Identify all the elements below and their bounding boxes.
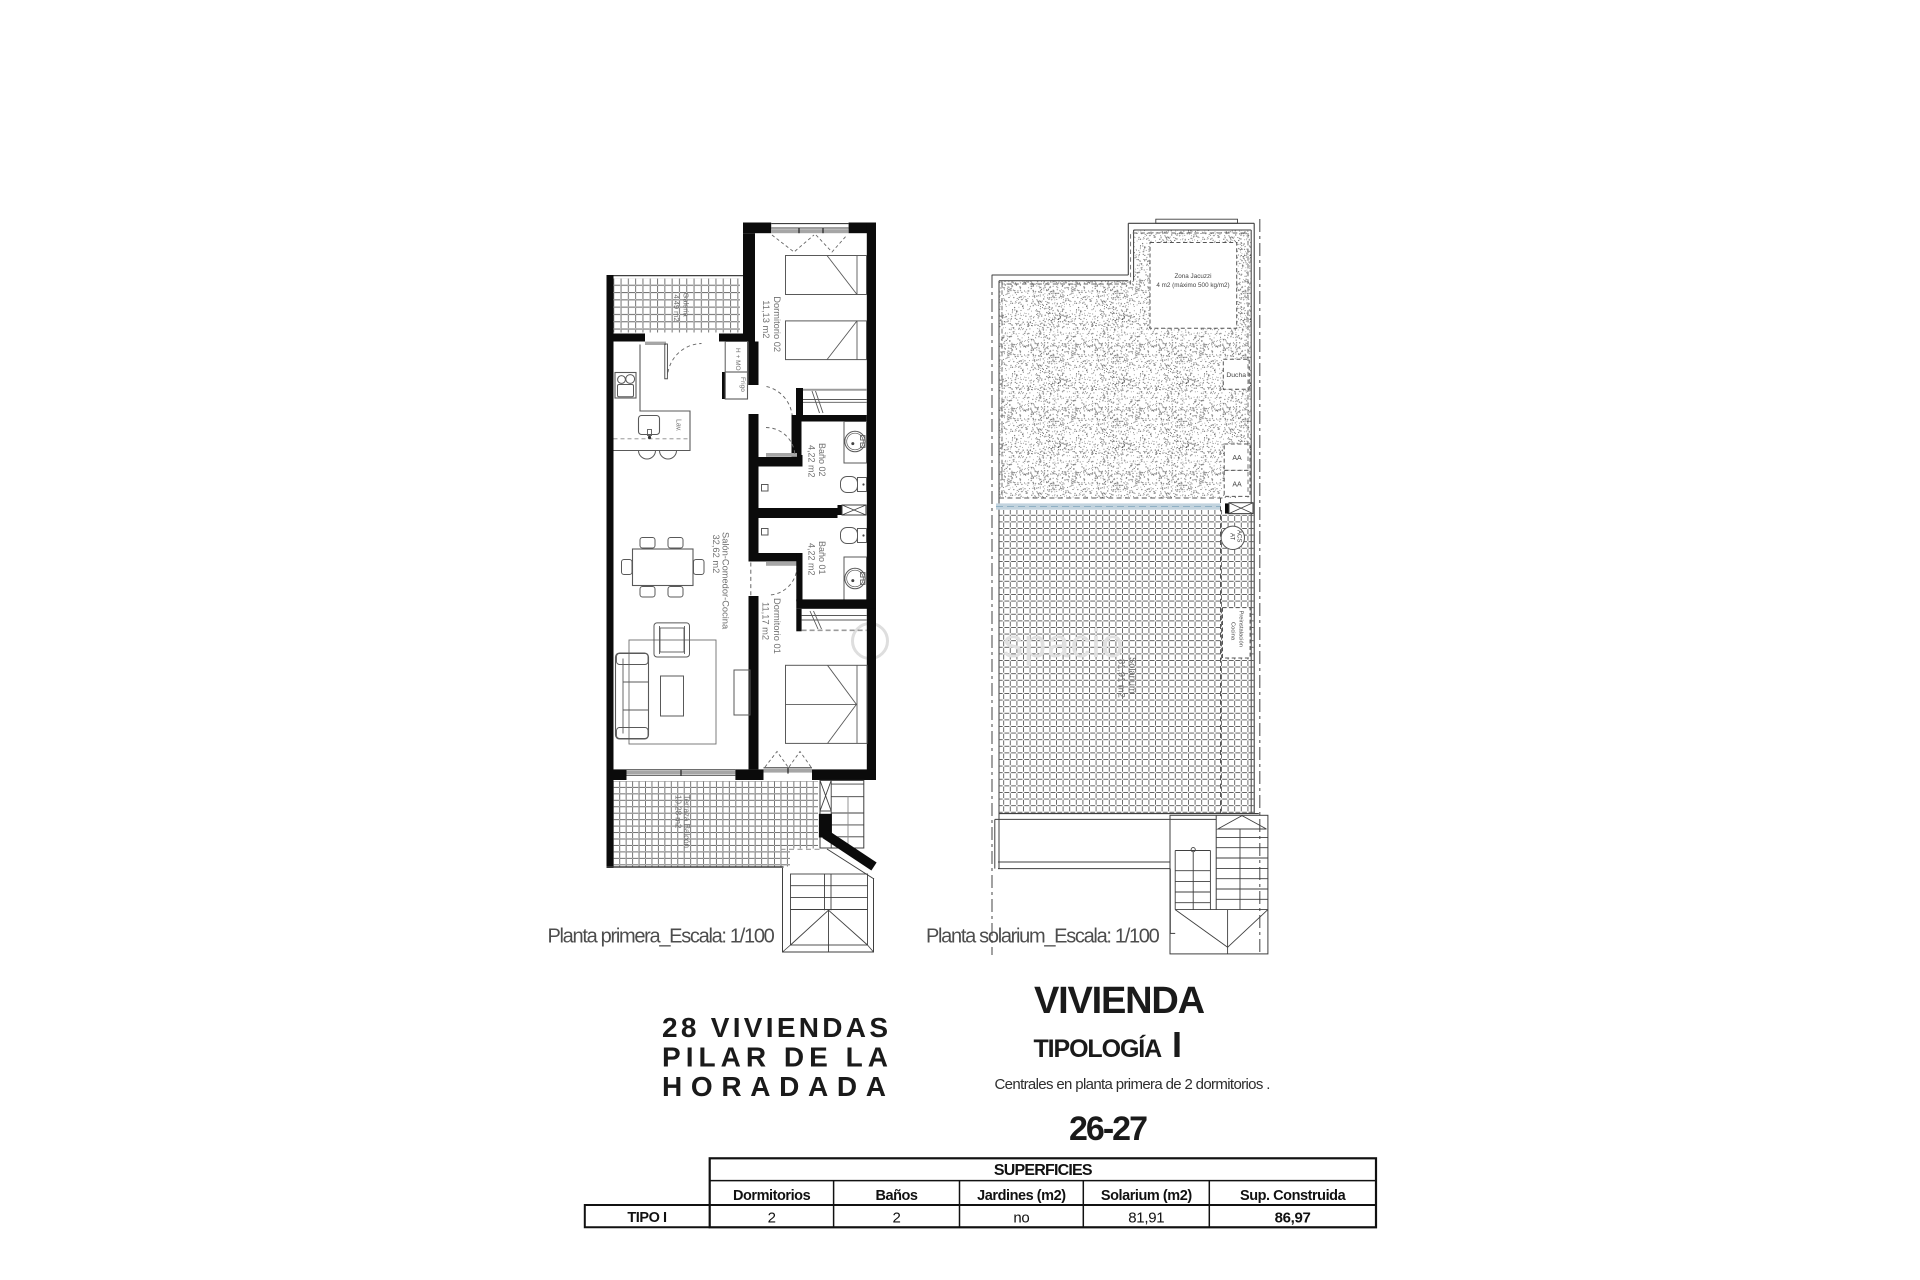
svg-text:32,62 m2: 32,62 m2 bbox=[711, 535, 721, 574]
svg-text:86,97: 86,97 bbox=[1275, 1209, 1311, 1226]
svg-text:4,22 m2: 4,22 m2 bbox=[807, 445, 817, 478]
svg-text:Salón-Comedor-Cocina: Salón-Comedor-Cocina bbox=[721, 532, 731, 630]
svg-text:AA: AA bbox=[1232, 455, 1242, 462]
svg-text:Solarium (m2): Solarium (m2) bbox=[1101, 1188, 1192, 1204]
svg-text:4 m2 (máximo 500 kg/m2): 4 m2 (máximo 500 kg/m2) bbox=[1156, 282, 1229, 289]
svg-text:PILAR DE LA: PILAR DE LA bbox=[662, 1042, 888, 1073]
svg-text:Baño 01: Baño 01 bbox=[817, 541, 827, 575]
svg-text:Zona Jacuzzi: Zona Jacuzzi bbox=[1174, 273, 1211, 280]
svg-text:VIVIENDA: VIVIENDA bbox=[1034, 980, 1205, 1022]
svg-text:Dormitorio 02: Dormitorio 02 bbox=[772, 296, 782, 352]
svg-text:81,91 m2: 81,91 m2 bbox=[1116, 659, 1126, 698]
svg-text:Planta primera_Escala: 1/100: Planta primera_Escala: 1/100 bbox=[548, 926, 775, 948]
svg-text:10,28 m2: 10,28 m2 bbox=[674, 795, 683, 829]
svg-text:26-27: 26-27 bbox=[1069, 1110, 1147, 1148]
svg-text:HORADADA: HORADADA bbox=[662, 1071, 886, 1102]
svg-text:Planta solarium_Escala: 1/100: Planta solarium_Escala: 1/100 bbox=[926, 926, 1160, 948]
svg-text:TIPO I: TIPO I bbox=[627, 1210, 667, 1226]
svg-text:Dormitorios: Dormitorios bbox=[733, 1188, 811, 1204]
svg-text:Frigo: Frigo bbox=[739, 377, 746, 392]
svg-text:spacio: spacio bbox=[1003, 622, 1125, 666]
svg-text:SUPERFICIES: SUPERFICIES bbox=[994, 1162, 1093, 1179]
svg-text:AA: AA bbox=[1232, 482, 1242, 489]
svg-text:Sup. Construida: Sup. Construida bbox=[1240, 1188, 1347, 1204]
svg-text:28 VIVIENDAS: 28 VIVIENDAS bbox=[662, 1012, 888, 1043]
svg-text:H + MO: H + MO bbox=[734, 348, 741, 371]
svg-text:2: 2 bbox=[768, 1209, 776, 1226]
svg-text:no: no bbox=[1013, 1209, 1029, 1226]
svg-text:Ducha: Ducha bbox=[1226, 372, 1246, 379]
svg-text:Solarium: Solarium bbox=[1128, 657, 1138, 694]
svg-text:Baño 02: Baño 02 bbox=[817, 443, 827, 477]
svg-text:Baños: Baños bbox=[875, 1188, 917, 1204]
svg-text:4,49 m2: 4,49 m2 bbox=[672, 295, 681, 322]
svg-text:Dormitorio 01: Dormitorio 01 bbox=[772, 598, 782, 654]
svg-text:TIPOLOGÍA I: TIPOLOGÍA I bbox=[1034, 1024, 1181, 1065]
svg-text:Galeria: Galeria bbox=[682, 293, 691, 318]
svg-text:11,13 m2: 11,13 m2 bbox=[761, 300, 771, 338]
svg-text:AT: AT bbox=[1229, 533, 1235, 541]
svg-text:ACS: ACS bbox=[1236, 530, 1242, 542]
svg-text:Cocina: Cocina bbox=[1230, 622, 1236, 641]
svg-text:Lav.: Lav. bbox=[675, 419, 682, 432]
svg-text:11,17 m2: 11,17 m2 bbox=[760, 602, 770, 640]
svg-text:Centrales en planta primera de: Centrales en planta primera de 2 dormito… bbox=[995, 1076, 1270, 1093]
svg-text:Preinstalación: Preinstalación bbox=[1238, 611, 1244, 647]
svg-text:Jardines (m2): Jardines (m2) bbox=[977, 1188, 1066, 1204]
svg-text:4,22 m2: 4,22 m2 bbox=[807, 543, 817, 576]
svg-text:81,91: 81,91 bbox=[1128, 1209, 1164, 1226]
svg-text:2: 2 bbox=[892, 1209, 900, 1226]
